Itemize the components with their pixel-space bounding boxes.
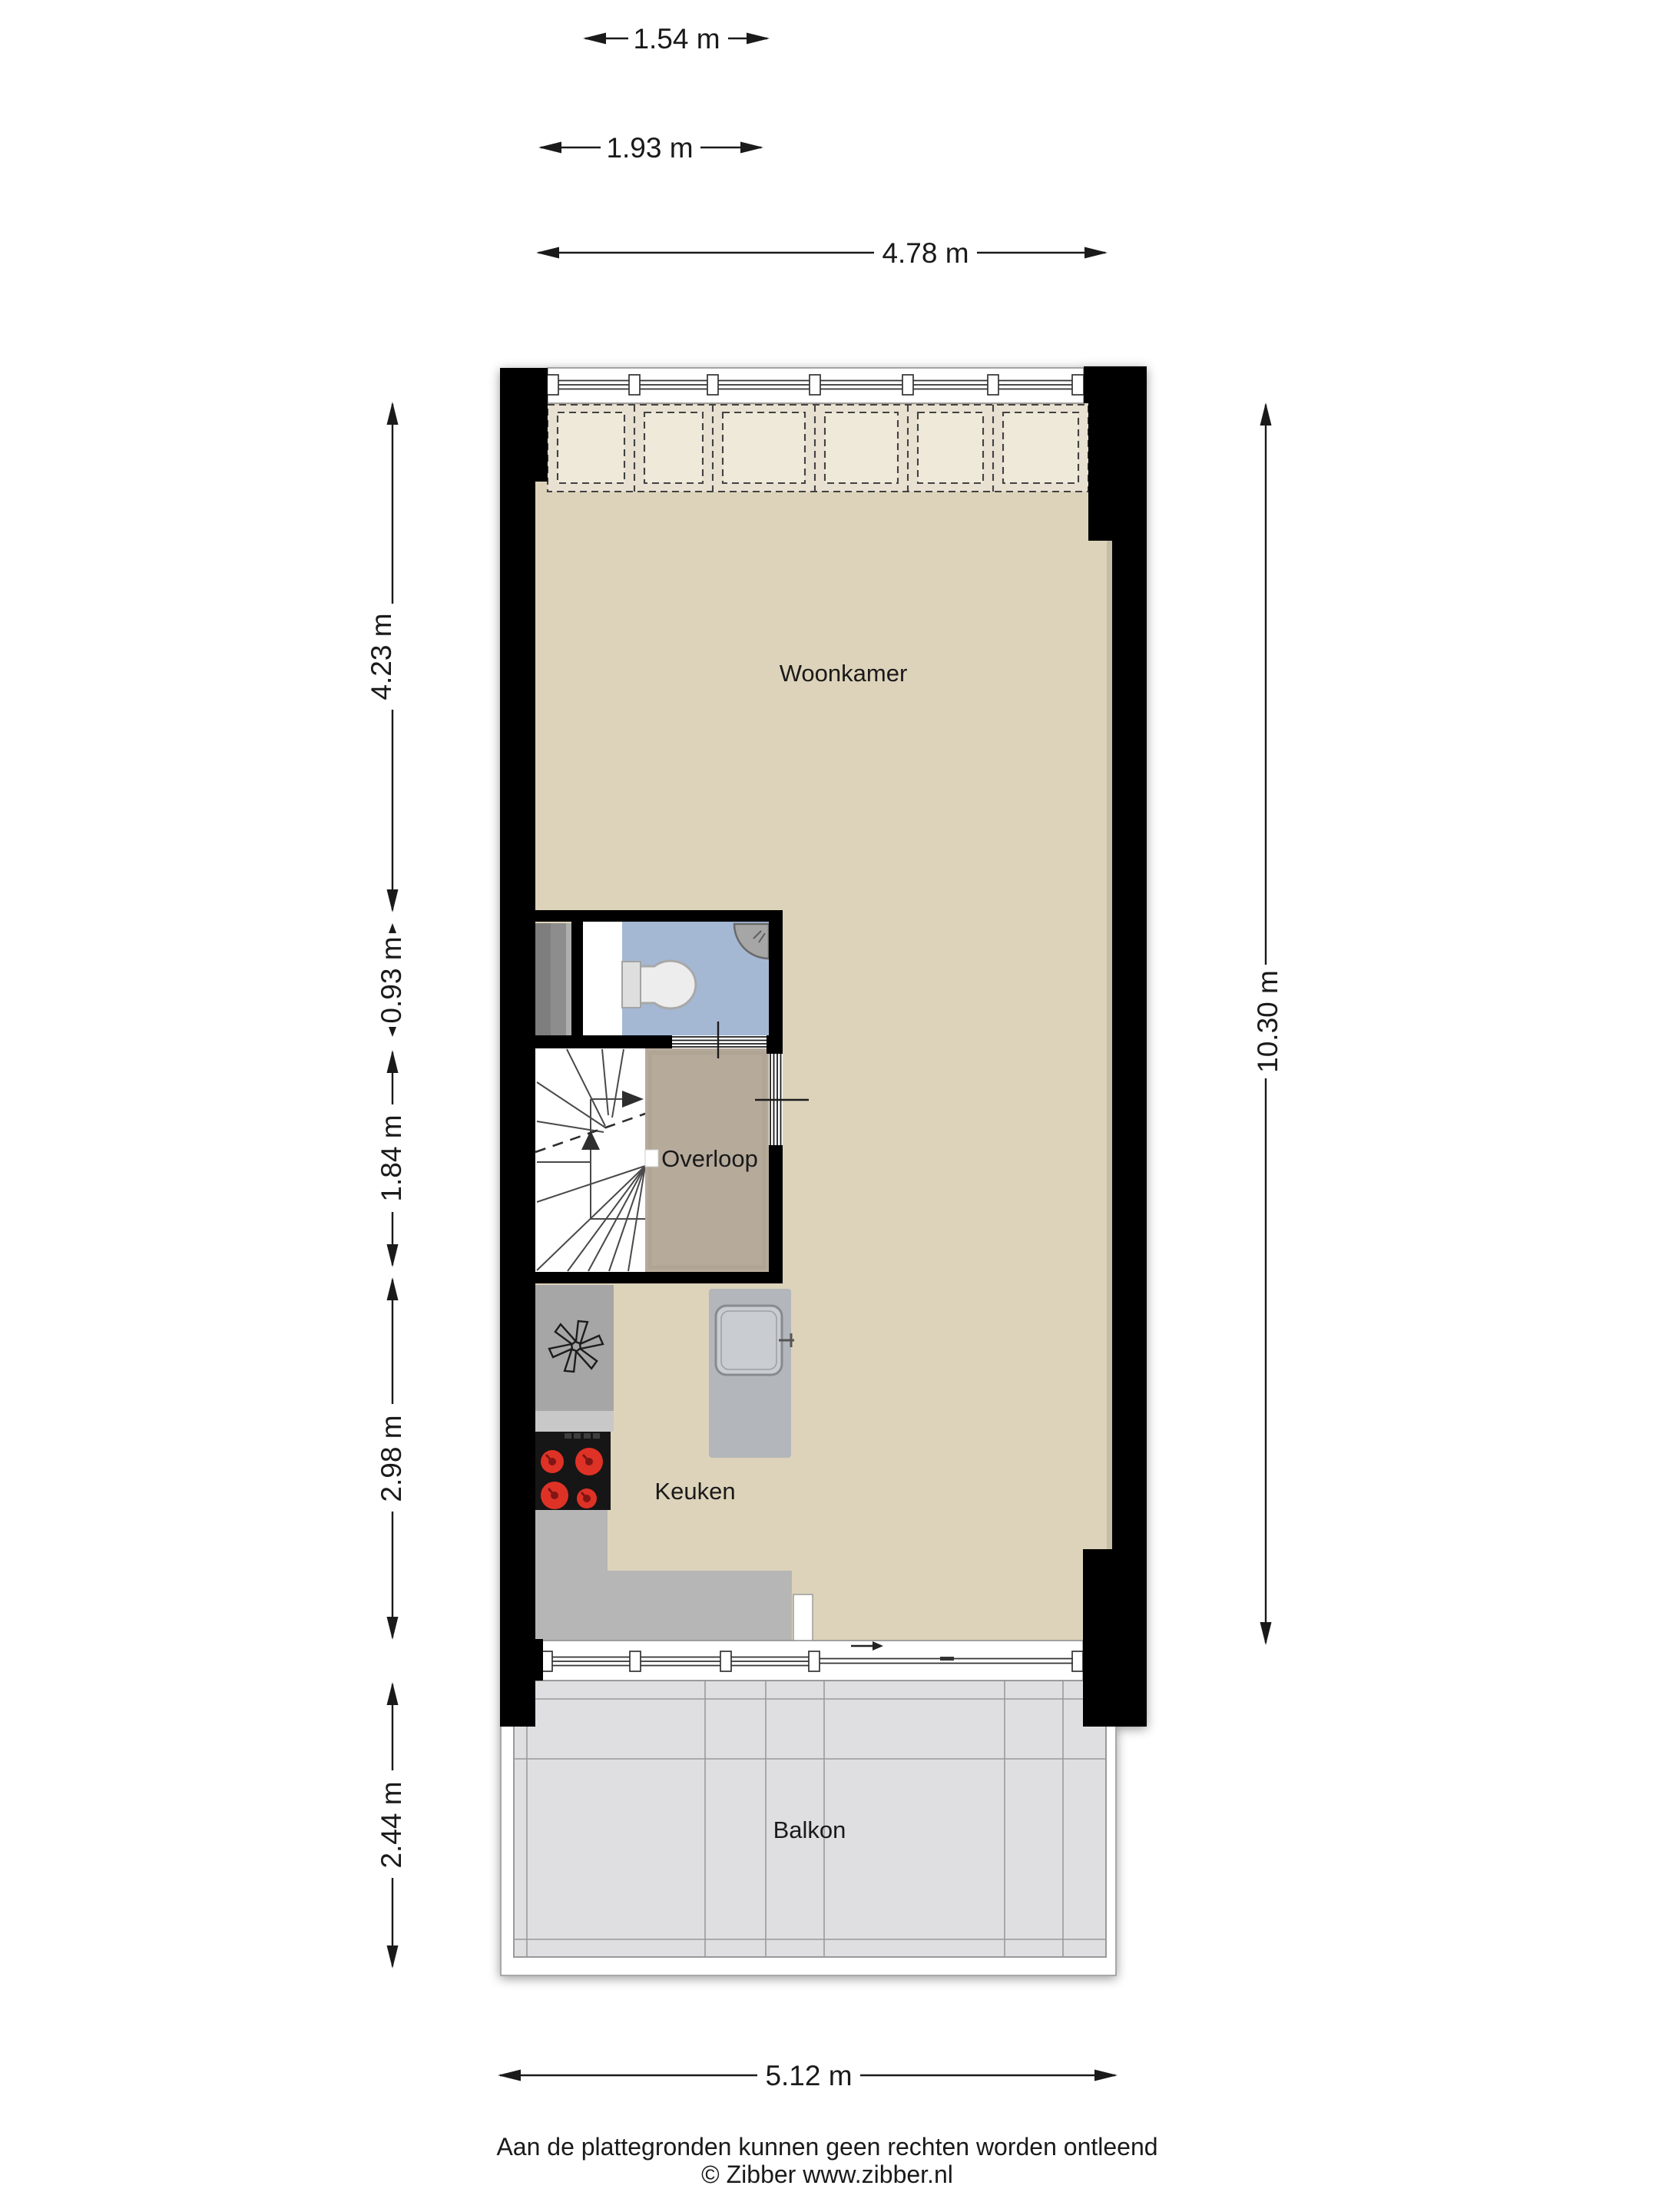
- svg-text:10.30 m: 10.30 m: [1252, 970, 1283, 1073]
- svg-text:0.93 m: 0.93 m: [376, 936, 407, 1023]
- svg-text:Balkon: Balkon: [773, 1816, 846, 1843]
- svg-text:2.44 m: 2.44 m: [376, 1781, 407, 1868]
- svg-text:© Zibber www.zibber.nl: © Zibber www.zibber.nl: [701, 2161, 953, 2188]
- svg-text:4.23 m: 4.23 m: [366, 613, 397, 700]
- svg-text:Aan de plattegronden kunnen ge: Aan de plattegronden kunnen geen rechten…: [496, 2133, 1157, 2161]
- svg-text:1.54 m: 1.54 m: [633, 23, 720, 55]
- svg-text:Woonkamer: Woonkamer: [780, 660, 908, 687]
- svg-text:2.98 m: 2.98 m: [376, 1415, 407, 1502]
- svg-text:Overloop: Overloop: [661, 1145, 758, 1172]
- svg-text:1.84 m: 1.84 m: [376, 1114, 407, 1201]
- svg-text:5.12 m: 5.12 m: [765, 2060, 852, 2091]
- svg-text:1.93 m: 1.93 m: [606, 132, 693, 164]
- svg-text:Keuken: Keuken: [654, 1478, 735, 1505]
- svg-text:4.78 m: 4.78 m: [882, 237, 969, 269]
